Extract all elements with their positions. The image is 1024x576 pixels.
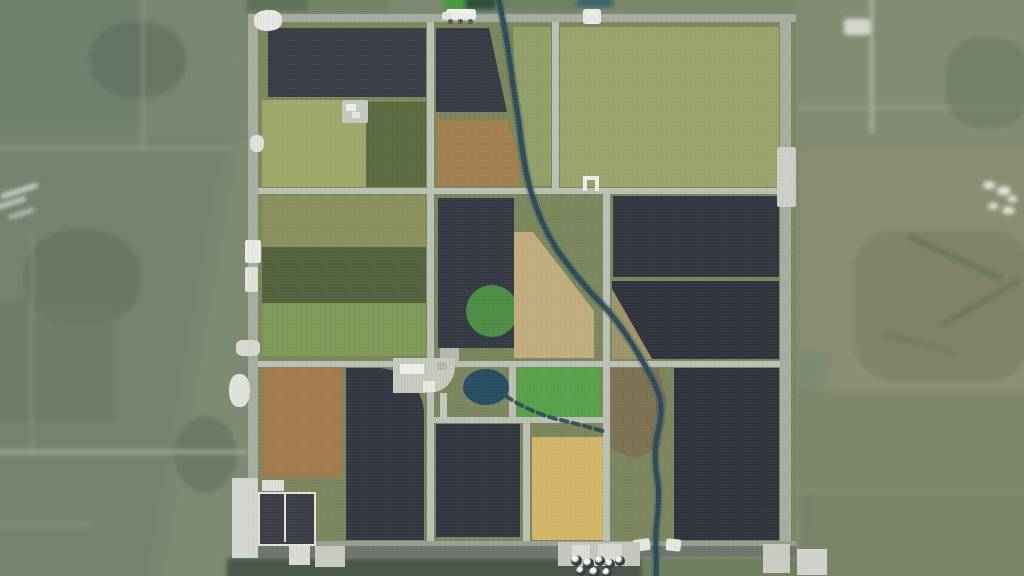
gate-icon-leg-right — [595, 180, 599, 191]
farmstead-mid-shed — [423, 381, 435, 392]
pad-southeast-1 — [763, 544, 790, 573]
machine-icon-north — [583, 9, 601, 24]
farmyard-sw-south-building — [289, 546, 310, 565]
poi-blob-northwest — [254, 10, 282, 31]
farmstead-mid-garage — [437, 362, 447, 370]
farmstead-nw-barn — [346, 104, 356, 111]
structures-and-icons — [0, 0, 1024, 576]
gate-icon-leg-left — [583, 180, 587, 191]
poi-west-blob — [229, 374, 250, 407]
farmstead-nw-shed — [352, 112, 360, 118]
satellite-map-view — [0, 0, 1024, 576]
truck-icon-wheel-1 — [448, 19, 453, 24]
silo-tank-1 — [571, 555, 582, 566]
farmstead-mid-barn — [400, 364, 424, 374]
silo-tank-6 — [576, 566, 586, 576]
truck-icon-wheel-2 — [458, 19, 463, 24]
pullout-east — [777, 147, 796, 207]
pad-southeast-2 — [797, 549, 827, 575]
bridge-marker-east — [665, 538, 681, 552]
silo-tank-7 — [589, 567, 600, 576]
farmyard-sw-pad — [232, 478, 258, 558]
farmyard-sw-divider — [284, 492, 286, 542]
silo-tank-5 — [615, 556, 625, 566]
farmyard-sw-asphalt — [258, 492, 316, 546]
silo-tank-8 — [602, 568, 612, 576]
poi-west-patch-1 — [250, 135, 264, 152]
truck-icon-wheel-3 — [468, 19, 473, 24]
farmyard-sw-barn — [262, 480, 284, 491]
silo-tank-3 — [595, 556, 605, 566]
facility-west-b — [245, 267, 258, 292]
facility-west-a — [245, 240, 261, 263]
farmyard-sw-south-pad — [315, 546, 345, 567]
poi-west-patch-2 — [236, 340, 260, 356]
